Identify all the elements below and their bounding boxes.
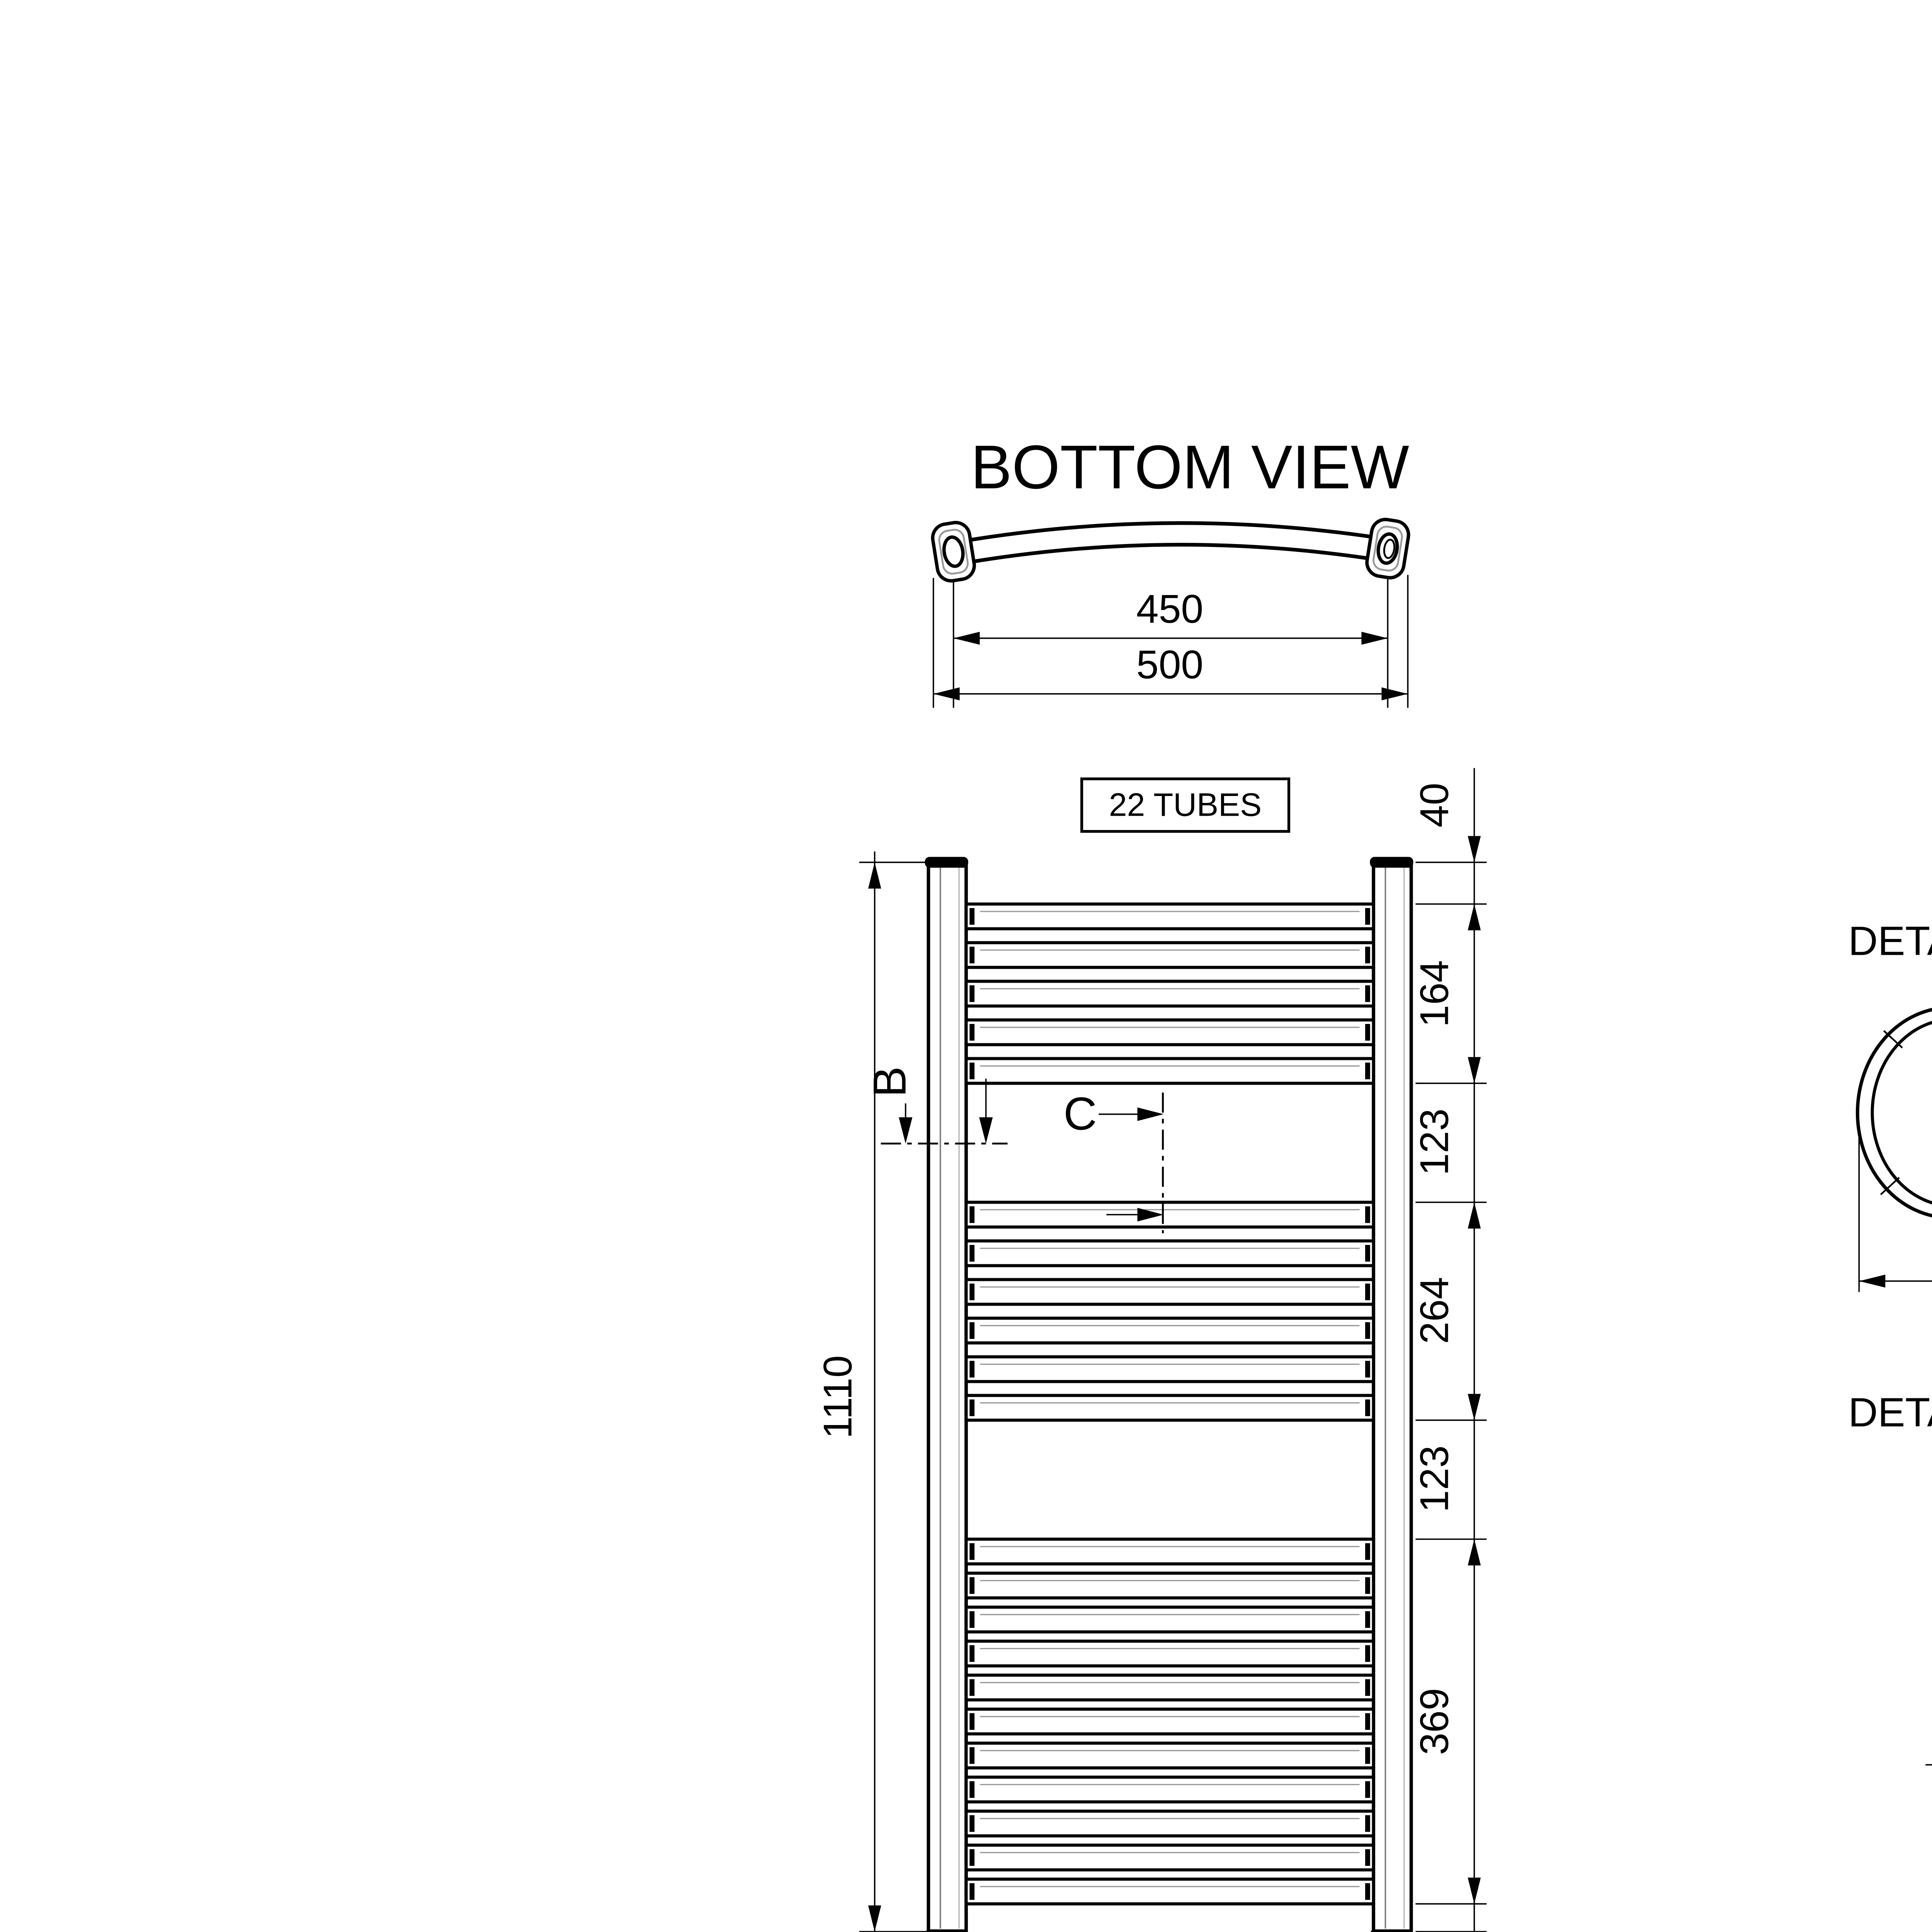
rail-top-cap xyxy=(925,857,968,868)
tube xyxy=(966,1020,1373,1045)
detail-b-heading: DETAIL B - Profile Cut xyxy=(1848,918,1932,964)
chain-dim-label: 123 xyxy=(1412,1109,1457,1175)
bottom-view-drawing xyxy=(931,517,1411,583)
detail-c-heading: DETAIL C - Tube Cut xyxy=(1848,1389,1932,1435)
tube-right-joint xyxy=(1365,1322,1370,1339)
tube-right-joint xyxy=(1365,947,1370,963)
tube xyxy=(966,1607,1373,1632)
tube-left-joint xyxy=(969,985,975,1002)
dim-500-label: 500 xyxy=(1136,643,1203,687)
rail-bottom-cap xyxy=(925,1929,968,1932)
marker-c-label: C xyxy=(1063,1088,1097,1140)
tube-right-joint xyxy=(1365,1577,1370,1594)
tube-right-joint xyxy=(1365,1815,1370,1832)
left-end-cap xyxy=(931,520,976,583)
tube-right-joint xyxy=(1365,1713,1370,1730)
tube-left-joint xyxy=(969,1713,975,1730)
tube-left-joint xyxy=(969,1063,975,1079)
tube-right-joint xyxy=(1365,1883,1370,1900)
tube xyxy=(966,1879,1373,1904)
tube-right-joint xyxy=(1365,1747,1370,1764)
tube-right-joint xyxy=(1365,1645,1370,1662)
tube-right-joint xyxy=(1365,1206,1370,1223)
rail-top-cap xyxy=(1370,857,1413,868)
tube xyxy=(966,1811,1373,1836)
tube-left-joint xyxy=(969,1577,975,1594)
tube-right-joint xyxy=(1365,1063,1370,1079)
tube xyxy=(966,1539,1373,1564)
dim-450-label: 450 xyxy=(1136,587,1203,632)
dim-arrow-up xyxy=(1468,1202,1481,1229)
height-dimension: 1110 xyxy=(816,852,927,1932)
tube-left-joint xyxy=(969,1747,975,1764)
tube-right-joint xyxy=(1365,1679,1370,1696)
tube xyxy=(966,943,1373,968)
dim-diameter: Ø 22 xyxy=(1925,1599,1932,1777)
tube-left-joint xyxy=(969,1679,975,1696)
tube-right-joint xyxy=(1365,1611,1370,1628)
tube-left-joint xyxy=(969,1849,975,1866)
tube xyxy=(966,1241,1373,1265)
right-rail xyxy=(1370,857,1413,1932)
chain-dim-label: 164 xyxy=(1412,960,1457,1027)
tube-left-joint xyxy=(969,1815,975,1832)
left-rail xyxy=(925,857,968,1932)
tube-right-joint xyxy=(1365,1849,1370,1866)
tube xyxy=(966,1641,1373,1666)
tube-left-joint xyxy=(969,1361,975,1378)
marker-b-label: B xyxy=(864,1066,916,1097)
detail-b-section: DETAIL B - Profile Cut 30 xyxy=(1848,918,1932,1292)
tube xyxy=(966,904,1373,929)
tube-left-joint xyxy=(969,908,975,925)
tube-left-joint xyxy=(969,1245,975,1262)
tube-right-joint xyxy=(1365,1245,1370,1262)
tube-left-joint xyxy=(969,1284,975,1300)
dim-arrow-down xyxy=(1468,1878,1481,1904)
tube-right-joint xyxy=(1365,1400,1370,1416)
front-view-section: 22 TUBES 1110 xyxy=(816,768,1487,1932)
dim-arrow-down xyxy=(1468,1394,1481,1420)
tube xyxy=(966,981,1373,1006)
bottom-view-section: BOTTOM VIEW 450 xyxy=(931,432,1411,708)
chain-dim-label: 369 xyxy=(1412,1688,1457,1755)
rail-bottom-cap xyxy=(1370,1929,1413,1932)
bottom-view-title: BOTTOM VIEW xyxy=(971,432,1409,502)
tube xyxy=(966,1279,1373,1304)
tube xyxy=(966,1675,1373,1700)
tube xyxy=(966,1395,1373,1420)
dimension-chain: 4016412326412336945 xyxy=(1412,768,1486,1932)
tube xyxy=(966,1573,1373,1598)
tube-array xyxy=(966,904,1373,1904)
tube-left-joint xyxy=(969,1543,975,1560)
tube xyxy=(966,1743,1373,1768)
profile-cut-shape xyxy=(1857,1003,1932,1223)
chain-dim-label: 123 xyxy=(1412,1446,1457,1512)
tube-right-joint xyxy=(1365,1543,1370,1560)
tube xyxy=(966,1202,1373,1227)
tube-left-joint xyxy=(969,1781,975,1798)
tube xyxy=(966,1777,1373,1802)
tube-right-joint xyxy=(1365,908,1370,925)
tube xyxy=(966,1059,1373,1083)
tube xyxy=(966,1845,1373,1870)
dim-arrow-up xyxy=(1468,1539,1481,1565)
dim-arrow-down xyxy=(1468,1057,1481,1083)
tube-left-joint xyxy=(969,1400,975,1416)
tube-left-joint xyxy=(969,1611,975,1628)
dim-arrow-up xyxy=(1468,904,1481,930)
tube-left-joint xyxy=(969,1322,975,1339)
chain-dim-label: 264 xyxy=(1412,1277,1457,1344)
tube-left-joint xyxy=(969,947,975,963)
chain-dim-label: 40 xyxy=(1412,783,1457,828)
badge-label: 22 TUBES xyxy=(1109,787,1262,823)
tube-left-joint xyxy=(969,1024,975,1041)
tube-left-joint xyxy=(969,1206,975,1223)
tube xyxy=(966,1709,1373,1734)
tube-right-joint xyxy=(1365,985,1370,1002)
tube-right-joint xyxy=(1365,1284,1370,1300)
dim-1110-label: 1110 xyxy=(816,1355,861,1439)
tube-left-joint xyxy=(969,1883,975,1900)
tube-right-joint xyxy=(1365,1361,1370,1378)
tube xyxy=(966,1357,1373,1381)
tube-left-joint xyxy=(969,1645,975,1662)
tube-right-joint xyxy=(1365,1781,1370,1798)
curved-tube-top-edge xyxy=(964,523,1379,541)
radiator-technical-drawing: BOTTOM VIEW 450 xyxy=(0,0,1932,1932)
tube xyxy=(966,1318,1373,1343)
right-end-cap xyxy=(1365,517,1410,580)
detail-c-section: DETAIL C - Tube Cut Ø 22 xyxy=(1848,1389,1932,1777)
tube-right-joint xyxy=(1365,1024,1370,1041)
curved-tube-bottom-edge xyxy=(968,545,1376,563)
dim-arrow-down xyxy=(1468,836,1481,862)
tubes-count-badge: 22 TUBES xyxy=(1082,779,1289,832)
